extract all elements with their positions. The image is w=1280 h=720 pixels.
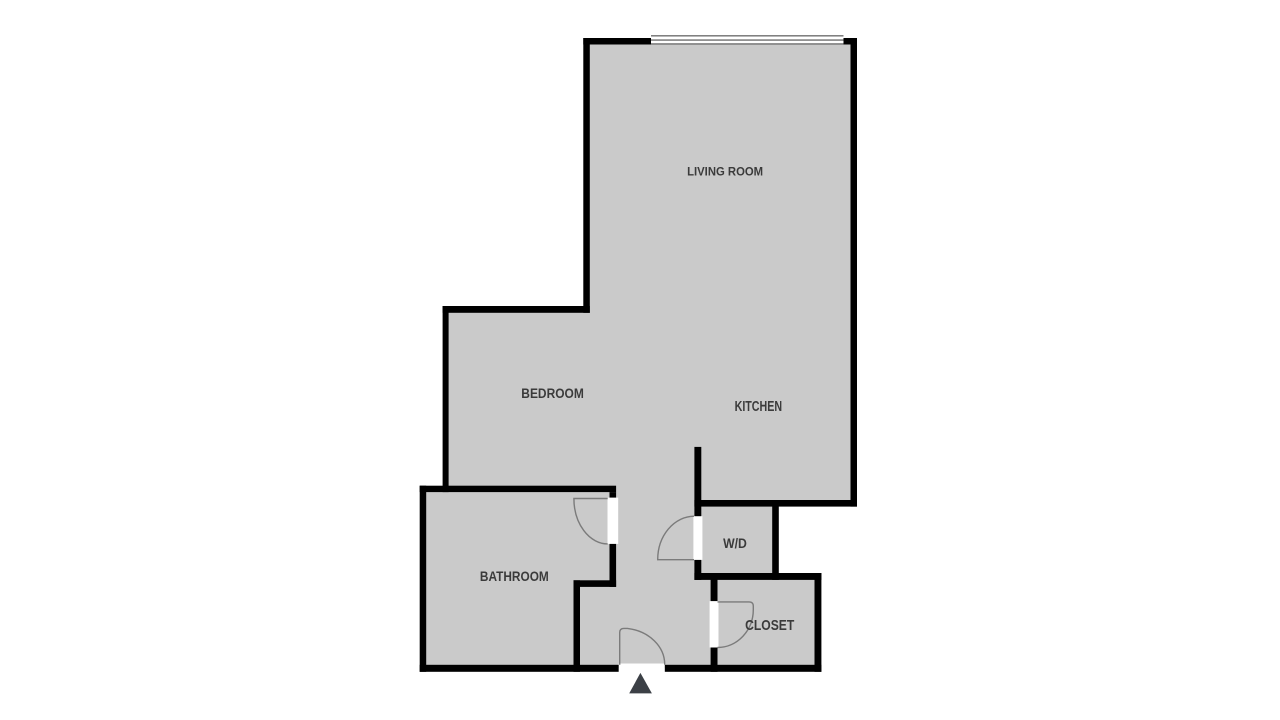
svg-text:KITCHEN: KITCHEN <box>735 399 783 415</box>
svg-text:BATHROOM: BATHROOM <box>480 568 549 584</box>
svg-text:W/D: W/D <box>723 535 747 551</box>
svg-text:LIVING ROOM: LIVING ROOM <box>687 164 763 178</box>
svg-text:BEDROOM: BEDROOM <box>521 386 584 401</box>
svg-text:CLOSET: CLOSET <box>745 617 794 634</box>
